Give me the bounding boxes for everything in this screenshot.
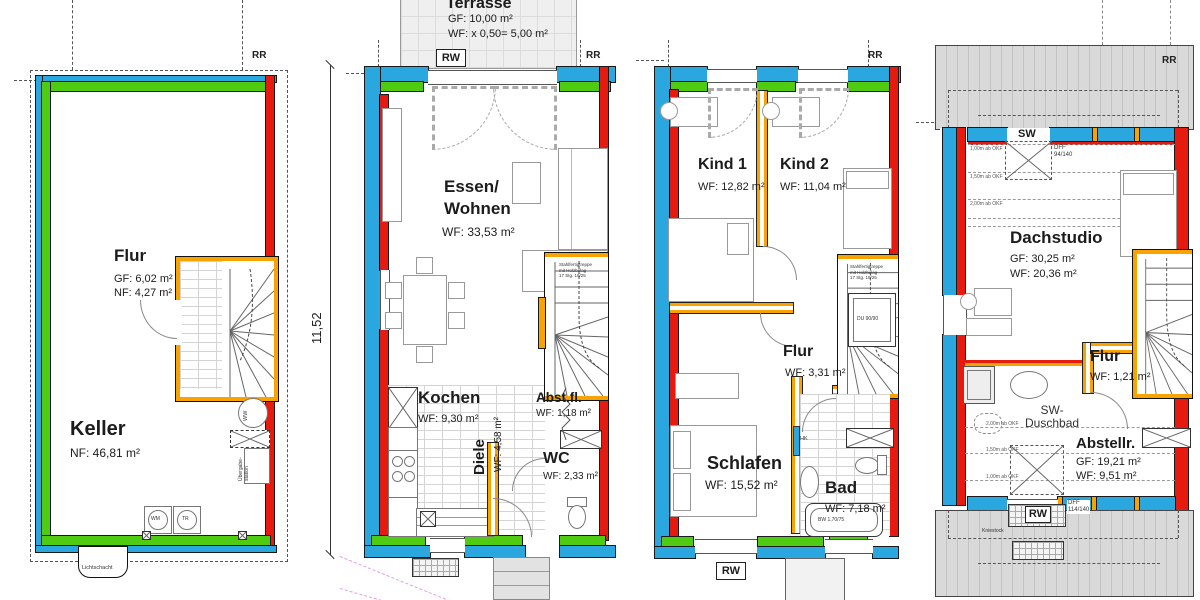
wall-segment (42, 82, 270, 91)
burner (392, 471, 403, 482)
sideboard (382, 108, 402, 222)
interior-wall (670, 303, 793, 313)
boundary-line (668, 40, 669, 67)
height-label: 1,00m ab OKF (986, 474, 1019, 480)
wall-segment (957, 335, 965, 505)
room-label-abstfl: Abst.fl. (536, 390, 582, 405)
shower-tray (967, 370, 991, 400)
vent-box (1142, 428, 1191, 448)
uebergabestation: Übergabe- station (244, 448, 270, 484)
wall-divider (1135, 128, 1139, 141)
bed (668, 218, 754, 302)
boiler-icon: WW (238, 398, 268, 428)
tub-label: BW 1,70/75 (818, 517, 844, 523)
wall-segment (372, 536, 425, 545)
wall-segment (968, 128, 1007, 141)
room-area: NF: 46,81 m² (70, 446, 140, 460)
bed (843, 168, 892, 249)
plan-dachgeschoss: 1,00m ab OKF 1,50m ab OKF 2,00m ab OKF S… (930, 0, 1200, 600)
room-area: WF: 12,82 m² (698, 180, 765, 194)
room-area: WF: 33,53 m² (442, 225, 515, 239)
height-line (965, 453, 1175, 454)
sofa (558, 148, 608, 250)
wall-segment (1096, 497, 1135, 510)
terrace-door (428, 70, 557, 85)
wall-segment (42, 536, 270, 545)
wardrobe (675, 373, 739, 399)
wall-segment (655, 67, 670, 558)
room-area: GF: 19,21 m² WF: 9,51 m² (1076, 455, 1141, 483)
boundary-line (1102, 0, 1103, 45)
chair (385, 282, 402, 299)
wall-segment (465, 536, 522, 545)
chair (416, 346, 433, 363)
floorplan-drawing: Flur GF: 6,02 m² NF: 4,27 m² Keller NF: … (0, 0, 1200, 600)
chair (660, 102, 678, 120)
stair-note: Stahlfertigtreppe mit Holzbelag 17 Stg. … (850, 264, 883, 281)
wall-segment (365, 67, 380, 555)
wall-segment (757, 547, 825, 558)
rr-label: RR (252, 50, 266, 61)
wall-segment (380, 330, 388, 535)
sofa-line (571, 149, 572, 249)
stair: Stahlfertigtreppe mit Holzbelag 17 Stg. … (545, 253, 608, 400)
rr-label: RR (1162, 55, 1176, 66)
wall-segment (1139, 497, 1175, 510)
roof-offset-line (948, 90, 1178, 91)
window (798, 69, 848, 83)
wall-segment (560, 546, 615, 557)
room-area: WF: 15,52 m² (705, 478, 778, 492)
boundary-line (242, 0, 243, 70)
chair (385, 312, 402, 329)
wall-segment (873, 547, 898, 558)
chair (448, 312, 465, 329)
wall-segment (365, 546, 430, 557)
step-line (494, 571, 549, 572)
height-label: 1,50m ab OKF (970, 174, 1003, 180)
desk (974, 288, 1012, 316)
rr-label: RR (868, 50, 882, 61)
roof-offset-line (1178, 510, 1179, 538)
kniestock-label: Kniestock (982, 528, 1004, 534)
entry-steps (493, 557, 550, 600)
height-label: 1,00m ab OKF (970, 146, 1003, 152)
chair (416, 257, 433, 274)
door-swing-arc (760, 313, 794, 347)
room-label-abstellr: Abstellr. (1076, 435, 1135, 452)
toilet-tank (877, 455, 887, 475)
coffee-table (512, 162, 541, 204)
room-label-dachstudio: Dachstudio (1010, 228, 1103, 248)
room-area: WF: 1,18 m² (536, 407, 591, 421)
boiler-label: WW (243, 411, 249, 421)
room-label-schlafen: Schlafen (707, 453, 782, 474)
room-label-flur: Flur (783, 343, 813, 361)
wall-box (142, 531, 151, 540)
room-label-bad: Bad (825, 478, 857, 498)
wall-segment (757, 82, 795, 91)
stove-icon (388, 450, 418, 498)
room-area: WF: 4,58 m² (492, 417, 506, 472)
pillow (727, 223, 749, 255)
sw-label: SW (1018, 128, 1036, 140)
washing-machine-icon: WM (144, 506, 172, 534)
shower (963, 366, 995, 404)
wall-divider (1135, 497, 1139, 510)
room-area: WF: 9,30 m² (418, 412, 479, 426)
roof-window-marker (1005, 141, 1052, 180)
height-label: 1,50m ab OKF (986, 447, 1019, 453)
radiator (793, 426, 800, 456)
boundary-line (378, 40, 379, 67)
radiator-label: HK (800, 436, 808, 442)
room-label-wc: WC (543, 450, 570, 468)
room-label-essen: Essen/ Wohnen (444, 176, 511, 220)
tall-cupboard (388, 387, 418, 429)
wall-segment (848, 82, 895, 91)
lichtschacht: Lichtschacht (78, 546, 128, 578)
boundary-line (72, 0, 73, 70)
wall-segment (757, 67, 798, 82)
window-swing-arc (708, 88, 758, 138)
window-swing-arc (799, 88, 849, 138)
roof-offset-line (1178, 90, 1179, 128)
height-line (965, 480, 1175, 481)
room-label-kind1: Kind 1 (698, 156, 747, 174)
dimension-line (330, 65, 331, 555)
wall-box (238, 531, 247, 540)
wall-divider (1092, 497, 1096, 510)
wall-segment (539, 298, 545, 348)
uebergabestation-label: Übergabe- station (239, 457, 250, 481)
rw-marker: RW (716, 562, 746, 580)
dryer-icon: TR (173, 506, 201, 534)
boundary-line (580, 40, 581, 67)
door-swing-arc (432, 86, 496, 150)
window (825, 539, 873, 554)
spiral-stair (176, 257, 278, 401)
wall-segment (1097, 128, 1135, 141)
wall-segment (943, 335, 957, 505)
wall-segment (655, 547, 695, 558)
dimension-label: 11,52 (310, 312, 324, 344)
window (695, 539, 757, 554)
height-label: 2,00m ab OKF (970, 201, 1003, 207)
wm-label: WM (151, 516, 160, 522)
wall-segment (1050, 128, 1093, 141)
washbasin (800, 466, 819, 498)
roof-hatch (935, 45, 1194, 130)
wall-segment (957, 128, 965, 295)
lichtschacht-label: Lichtschacht (82, 565, 113, 571)
room-label-kind2: Kind 2 (780, 156, 829, 174)
room-area: WF: 1,21 m² (1090, 370, 1151, 384)
wall-segment (42, 82, 50, 545)
wall-divider (1093, 128, 1097, 141)
area-line: NF: 4,27 m² (114, 286, 173, 300)
room-area: WF: 2,33 m² (543, 470, 598, 484)
room-area: GF: 6,02 m² NF: 4,27 m² (114, 272, 173, 300)
burner (404, 456, 415, 467)
rw-marker: RW (436, 49, 466, 67)
rw-marker: RW (1025, 506, 1051, 523)
roof-offset-line (948, 510, 949, 538)
masonry-hatch (180, 261, 222, 389)
grate (412, 558, 459, 577)
room-area: WF: 11,04 m² (780, 180, 846, 194)
room-label-flur: Flur (1090, 348, 1120, 366)
toilet-bowl (855, 457, 879, 474)
chair (960, 293, 977, 310)
wall-segment (465, 546, 525, 557)
plan-obergeschoss: Stahlfertigtreppe mit Holzbelag 17 Stg. … (650, 0, 912, 600)
shower-label: DU 90/90 (857, 316, 878, 322)
sink-unit (420, 511, 436, 527)
wall-segment (560, 536, 605, 545)
window (707, 69, 757, 83)
shower: DU 90/90 (848, 293, 896, 347)
roof-offset-line (978, 115, 1160, 116)
plan-erdgeschoss: Terrasse GF: 10,00 m² WF: x 0,50= 5,00 m… (360, 0, 622, 600)
wall-segment (662, 537, 693, 546)
tr-label: TR (182, 516, 189, 522)
dff-label: DFF 94/140 (1054, 145, 1072, 159)
boundary-pink-line (340, 588, 484, 600)
chair (448, 282, 465, 299)
toilet-bowl (568, 505, 586, 529)
burner (392, 456, 403, 467)
room-area: WF: 3,31 m² (785, 366, 846, 380)
rr-label: RR (586, 50, 600, 61)
room-label-diele: Diele (471, 439, 488, 475)
pillow (1123, 173, 1174, 195)
chair (762, 102, 780, 120)
pillow (846, 171, 889, 189)
pillow (673, 431, 691, 469)
dormer-outline (785, 558, 845, 600)
dining-table (403, 275, 447, 345)
height-label: 2,00m ab OKF (986, 421, 1019, 427)
door-swing-arc (763, 246, 797, 280)
roof-offset-line (948, 538, 1178, 539)
roof-window-grid (1012, 541, 1064, 560)
room-area: WF: 7,18 m² (825, 502, 886, 516)
wall-segment (943, 128, 957, 295)
dff-label: DFF 114/140 (1067, 500, 1090, 514)
vent-box (230, 430, 270, 448)
axis-line (636, 60, 664, 61)
stair-note: Stahlfertigtreppe mit Holzbelag 17 Stg. … (559, 262, 592, 279)
area-line: GF: 6,02 m² (114, 272, 173, 286)
wall-segment (36, 546, 276, 552)
boundary-line (1170, 0, 1171, 45)
washbasin (1010, 371, 1048, 399)
roof-offset-line (948, 90, 949, 128)
roof-offset-line (978, 563, 1160, 564)
room-label-keller: Keller (70, 418, 126, 441)
window (430, 538, 465, 553)
step-line (494, 585, 549, 586)
room-area: GF: 30,25 m² WF: 20,36 m² (1010, 252, 1077, 282)
room-label-flur: Flur (114, 246, 146, 266)
room-label-duschbad: SW- Duschbad (1025, 404, 1079, 430)
plan-keller: Flur GF: 6,02 m² NF: 4,27 m² Keller NF: … (28, 0, 290, 600)
wall-segment (968, 497, 1007, 510)
door-swing-arc (493, 86, 557, 150)
burner (404, 471, 415, 482)
room-label-kochen: Kochen (418, 388, 480, 408)
wall-segment (1139, 128, 1175, 141)
vent-box (846, 428, 894, 448)
room-area: GF: 10,00 m² WF: x 0,50= 5,00 m² (448, 12, 548, 42)
bed (1120, 170, 1177, 257)
wall-segment (758, 537, 823, 546)
shelf (966, 318, 1012, 336)
pillow (673, 473, 691, 511)
